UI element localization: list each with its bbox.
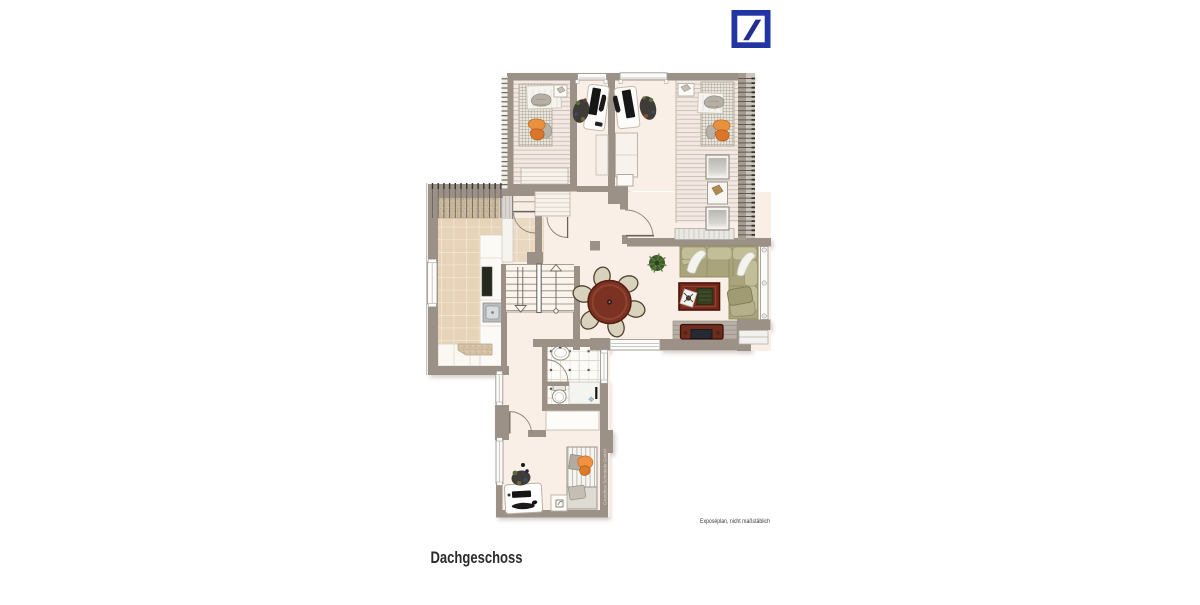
- svg-text:Grundriss Schmiede GmbH: Grundriss Schmiede GmbH: [603, 449, 608, 505]
- svg-text:Dachgeschoss: Dachgeschoss: [431, 549, 523, 567]
- svg-text:Exposéplan, nicht maßstäblich: Exposéplan, nicht maßstäblich: [700, 518, 770, 525]
